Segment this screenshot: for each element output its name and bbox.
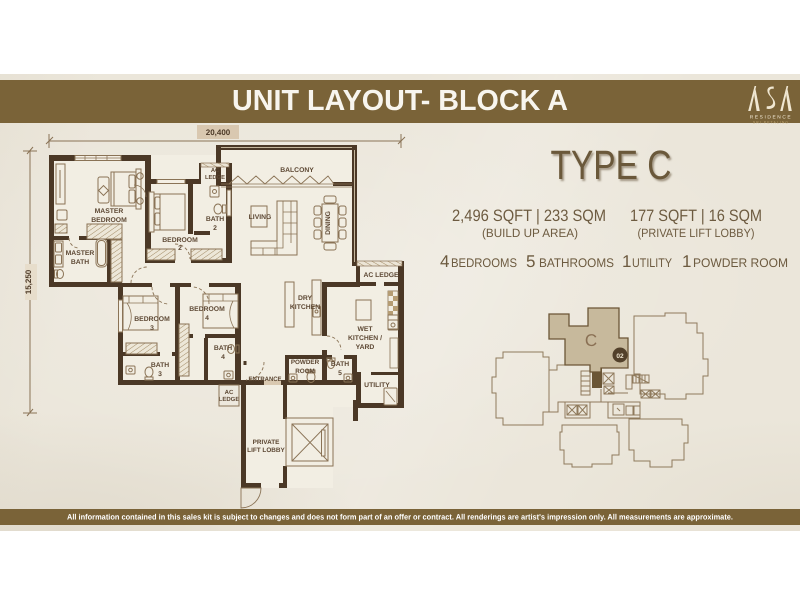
svg-text:All information contained in t: All information contained in this sales … (67, 513, 733, 522)
